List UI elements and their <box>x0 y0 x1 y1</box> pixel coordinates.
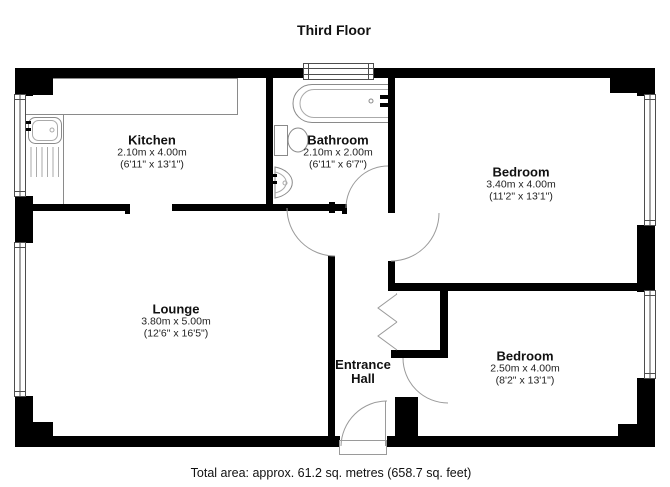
kitchen-sink <box>29 118 62 144</box>
room-label-entrance-hall: Entrance Hall <box>335 358 391 386</box>
wall-bottom-left <box>15 436 340 447</box>
floorplan-drawing <box>0 0 670 487</box>
wall-cupboard-right <box>440 291 448 358</box>
corner-block-top-right <box>610 68 655 93</box>
wall-bedrooms-divider <box>388 283 655 291</box>
room-dim-metric: 2.50m x 4.00m <box>490 364 559 376</box>
room-name: Bedroom <box>486 166 555 180</box>
room-label-bedroom1: Bedroom 3.40m x 4.00m (11'2" x 13'1") <box>486 166 555 203</box>
window-bathroom <box>304 64 374 80</box>
bathtub <box>293 85 389 123</box>
total-area-note: Total area: approx. 61.2 sq. metres (658… <box>191 466 472 480</box>
wall-kitchen-bottom <box>28 204 130 211</box>
room-label-lounge: Lounge 3.80m x 5.00m (12'6" x 16'5") <box>141 303 210 340</box>
wall-cupboard-bottom <box>391 350 448 358</box>
wash-basin <box>275 167 292 198</box>
door-jamb <box>329 202 335 213</box>
bifold-door-leaf <box>378 322 397 350</box>
wall-hall-stub <box>395 397 418 436</box>
wall-kitchen-bathroom <box>266 78 273 208</box>
wall-hall-left <box>328 256 335 436</box>
plan-title: Third Floor <box>297 22 371 38</box>
door-arc-hall <box>287 208 335 256</box>
room-dim-imperial: (12'6" x 16'5") <box>141 328 210 340</box>
room-dim-imperial: (11'2" x 13'1") <box>486 191 555 203</box>
corner-block-bottom-right <box>618 424 655 447</box>
room-dim-metric: 3.80m x 5.00m <box>141 317 210 329</box>
bath-drain-icon <box>369 99 373 103</box>
wall-bottom-right <box>387 436 655 447</box>
bathtub-inner <box>300 90 389 118</box>
room-label-bathroom: Bathroom 2.10m x 2.00m (6'11" x 6'7") <box>303 134 372 171</box>
room-name: Bedroom <box>490 350 559 364</box>
window-kitchen <box>15 95 26 197</box>
kitchen-drainer-lines <box>31 147 59 177</box>
door-arc-bedroom1 <box>391 213 439 261</box>
room-label-kitchen: Kitchen 2.10m x 4.00m (6'11" x 13'1") <box>117 134 186 171</box>
wall-lounge-top <box>172 204 335 211</box>
room-dim-metric: 2.10m x 4.00m <box>117 148 186 160</box>
room-name: Entrance <box>335 358 391 372</box>
door-jamb <box>125 204 130 214</box>
door-arc-bathroom <box>346 166 388 208</box>
kitchen-sink-drain-icon <box>50 128 54 132</box>
room-dim-imperial: (6'11" x 6'7") <box>303 159 372 171</box>
room-dim-imperial: (6'11" x 13'1") <box>117 159 186 171</box>
room-dim-imperial: (8'2" x 13'1") <box>490 375 559 387</box>
window-bedroom1 <box>645 95 656 226</box>
bifold-door-leaf <box>378 294 397 322</box>
entrance-door-arc <box>341 401 387 446</box>
room-dim-metric: 3.40m x 4.00m <box>486 180 555 192</box>
entrance-threshold <box>340 441 387 455</box>
bath-tap-icon <box>380 95 388 99</box>
room-label-bedroom2: Bedroom 2.50m x 4.00m (8'2" x 13'1") <box>490 350 559 387</box>
wall-left-mid <box>15 196 33 243</box>
kitchen-worktop <box>26 79 238 115</box>
room-name: Lounge <box>141 303 210 317</box>
room-name: Bathroom <box>303 134 372 148</box>
wall-bathroom-bedroom1 <box>388 78 395 213</box>
room-dim-metric: 2.10m x 2.00m <box>303 148 372 160</box>
window-lounge <box>15 243 26 397</box>
room-name: Hall <box>335 372 391 386</box>
room-name: Kitchen <box>117 134 186 148</box>
bath-tap-icon <box>380 103 388 107</box>
corner-block-top-left <box>15 68 53 95</box>
window-bedroom2 <box>645 291 656 379</box>
corner-block-bottom-left <box>15 422 53 447</box>
door-arc-bedroom2 <box>403 358 448 403</box>
floorplan-page: Third Floor <box>0 0 670 487</box>
walls <box>15 68 655 447</box>
toilet-cistern <box>275 126 288 156</box>
wall-right-mid <box>637 225 655 292</box>
